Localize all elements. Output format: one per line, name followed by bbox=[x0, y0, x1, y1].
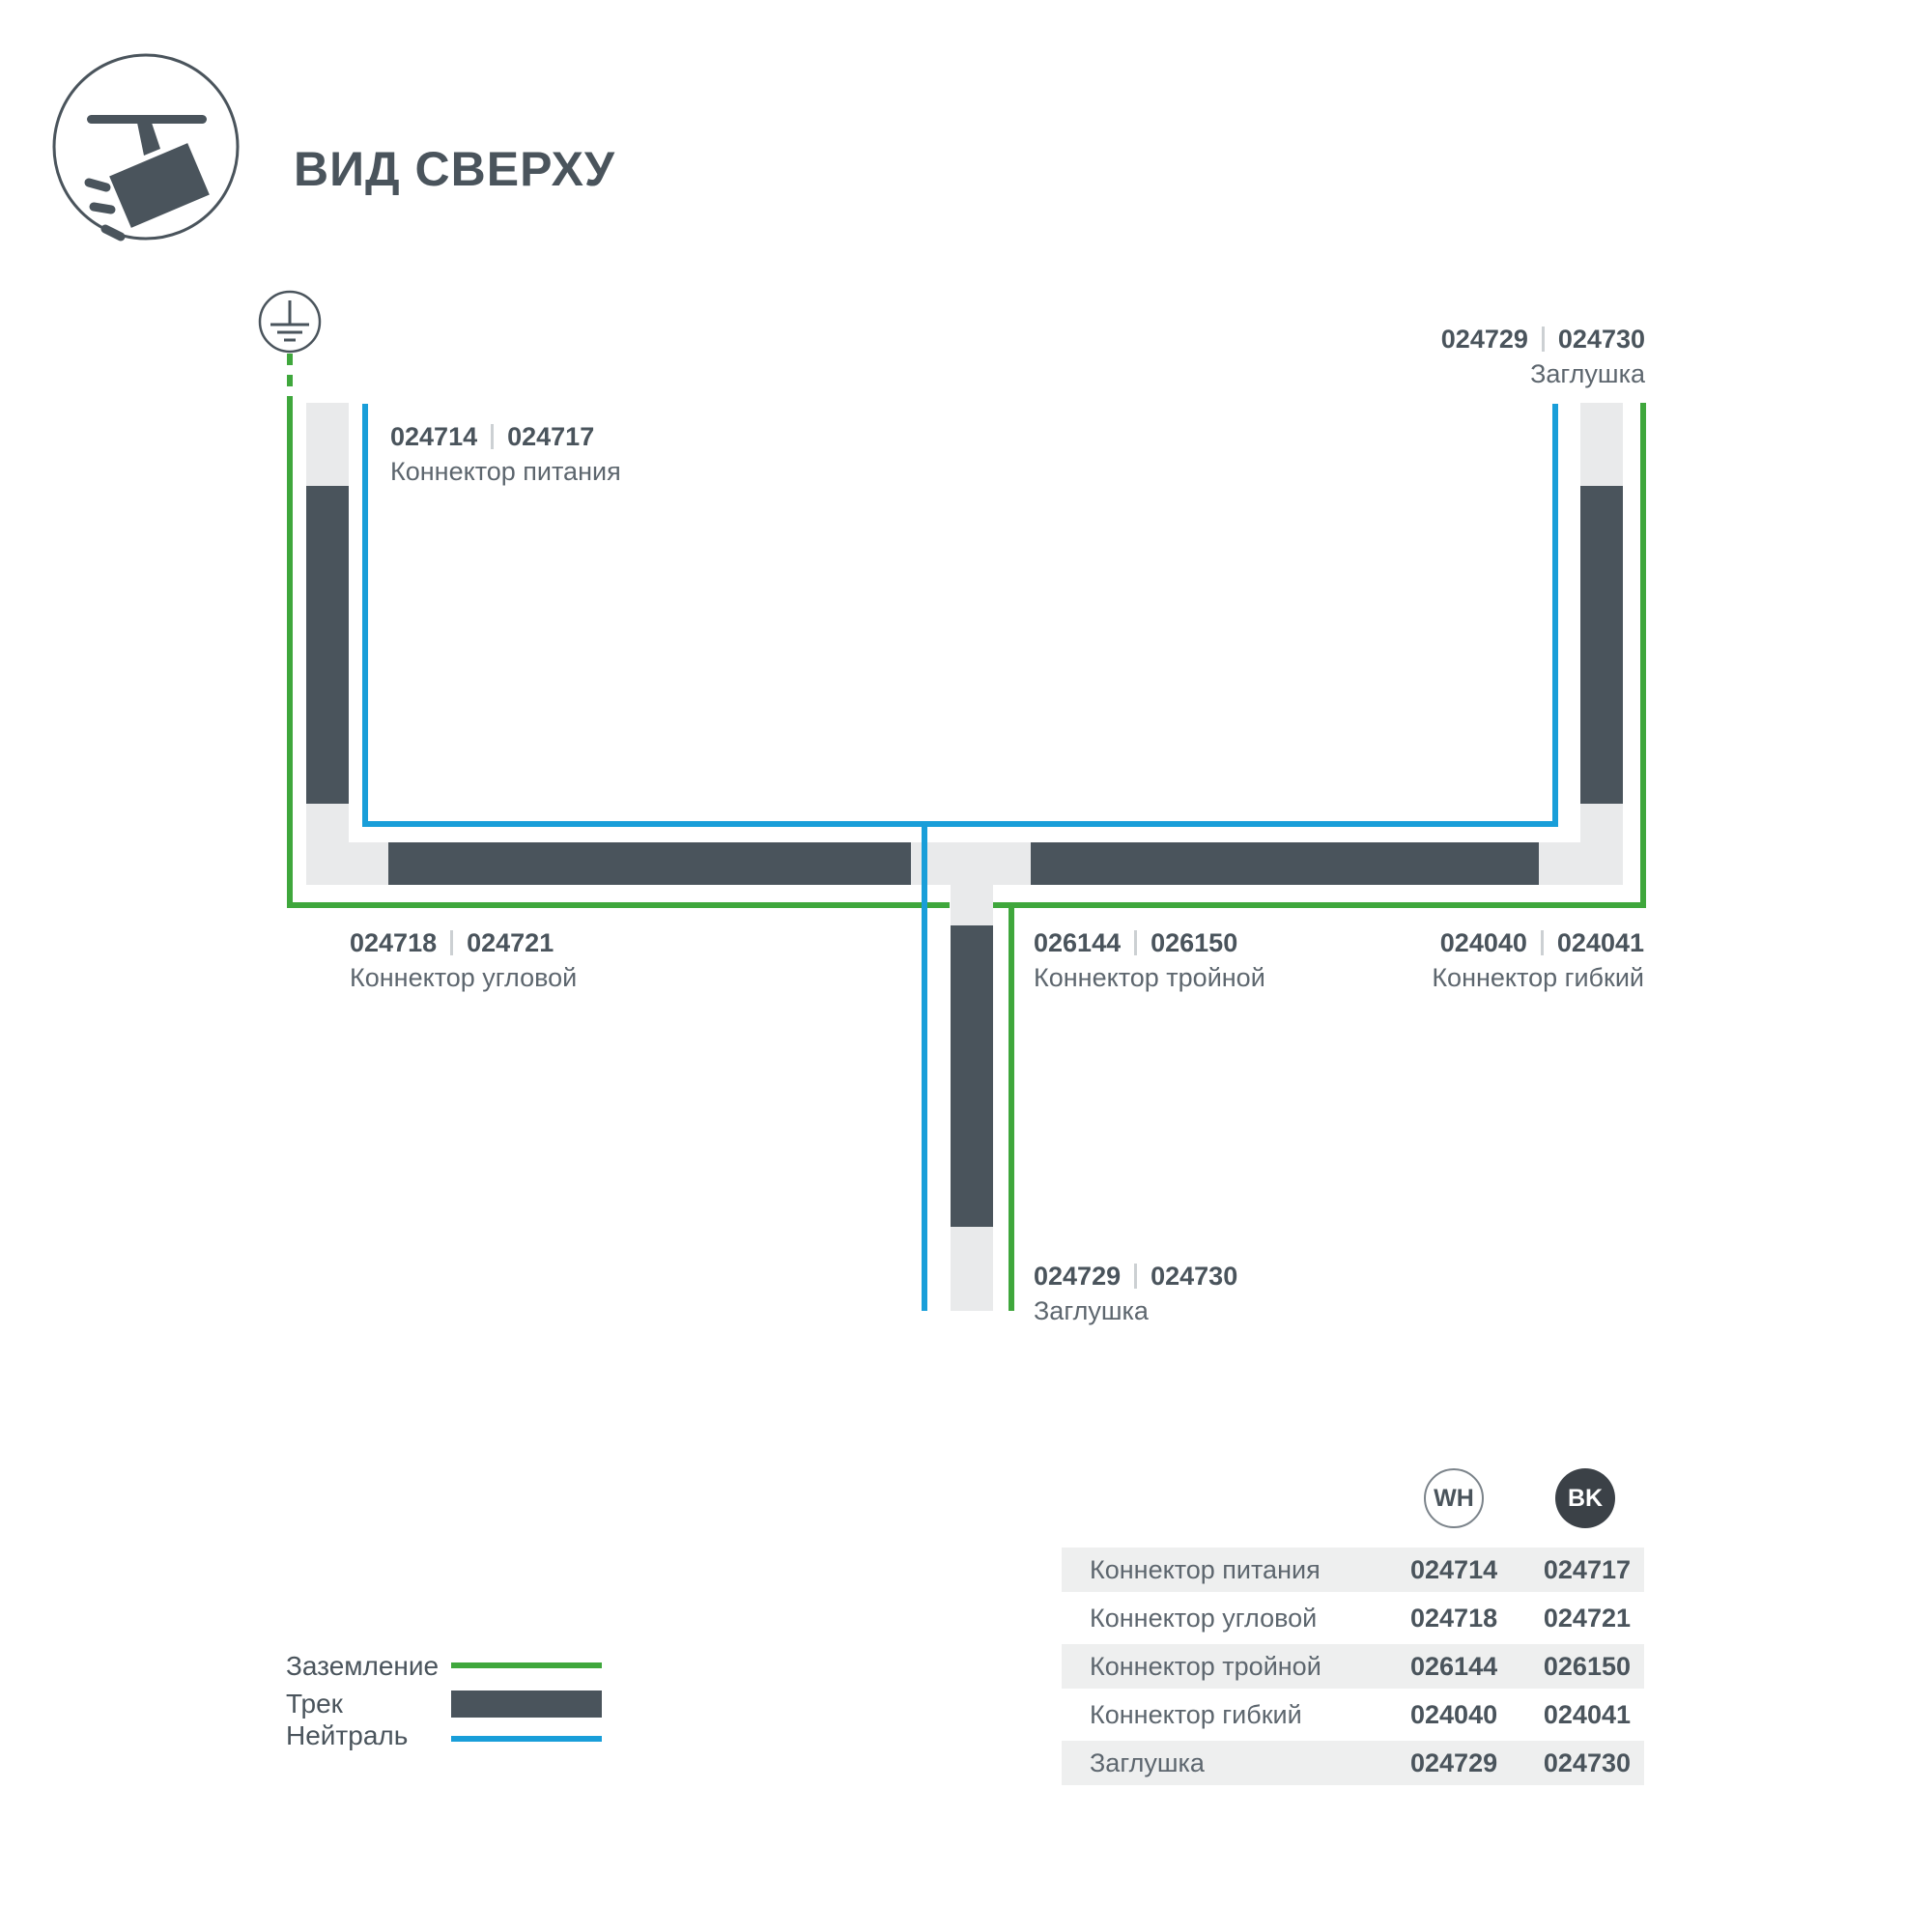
legend-swatch-track-bar bbox=[451, 1690, 602, 1718]
label-endcap-top-name: Заглушка bbox=[1530, 359, 1645, 388]
separator bbox=[491, 424, 494, 449]
neutral-line-left bbox=[362, 404, 368, 827]
part-number-wh: 024729 bbox=[1441, 325, 1528, 354]
label-endcap-top: 024729 024730 Заглушка bbox=[1441, 325, 1645, 388]
row-wh-number: 024714 bbox=[1410, 1555, 1497, 1585]
label-endcap-bottom-numbers: 024729 024730 bbox=[1034, 1262, 1237, 1291]
label-corner-connector: 024718 024721 Коннектор угловой bbox=[350, 928, 577, 992]
part-number-bk: 024730 bbox=[1558, 325, 1645, 354]
separator bbox=[1134, 930, 1137, 955]
track-segment-branch bbox=[951, 925, 993, 1227]
row-wh-number: 024729 bbox=[1410, 1748, 1497, 1778]
label-triple-name: Коннектор тройной bbox=[1034, 963, 1265, 992]
legend-label-ground: Заземление bbox=[286, 1652, 439, 1681]
color-badge-black: BK bbox=[1555, 1468, 1615, 1528]
label-endcap-bottom-name: Заглушка bbox=[1034, 1296, 1237, 1325]
part-number-bk: 024730 bbox=[1151, 1262, 1237, 1291]
part-number-wh: 024714 bbox=[390, 422, 477, 451]
separator bbox=[1541, 930, 1544, 955]
track-segment-right bbox=[1580, 486, 1623, 804]
ground-line-branch bbox=[1009, 902, 1014, 1311]
earth-ground-icon bbox=[257, 289, 323, 355]
legend-label-track: Трек bbox=[286, 1690, 343, 1719]
row-name: Коннектор тройной bbox=[1090, 1652, 1410, 1682]
part-number-wh: 024718 bbox=[350, 928, 437, 957]
row-name: Заглушка bbox=[1090, 1748, 1410, 1778]
color-badge-white: WH bbox=[1424, 1468, 1484, 1528]
label-corner-name: Коннектор угловой bbox=[350, 963, 577, 992]
label-power-connector: 024714 024717 Коннектор питания bbox=[390, 422, 621, 486]
ground-line-dashed bbox=[287, 354, 293, 404]
ground-line-right bbox=[1640, 403, 1646, 908]
table-row: Заглушка 024729 024730 bbox=[1062, 1741, 1644, 1785]
row-bk-number: 024721 bbox=[1497, 1604, 1631, 1634]
ground-line-bottom-right bbox=[993, 902, 1646, 908]
ground-line-left bbox=[287, 404, 293, 908]
label-flexible-name: Коннектор гибкий bbox=[1432, 963, 1644, 992]
label-flexible-connector: 024040 024041 Коннектор гибкий bbox=[1432, 928, 1644, 992]
row-name: Коннектор угловой bbox=[1090, 1604, 1410, 1634]
part-number-bk: 024041 bbox=[1557, 928, 1644, 957]
parts-table: Коннектор питания 024714 024717 Коннекто… bbox=[1062, 1548, 1644, 1789]
separator bbox=[1134, 1264, 1137, 1289]
legend-swatch-neutral-line bbox=[451, 1736, 602, 1742]
row-name: Коннектор питания bbox=[1090, 1555, 1410, 1585]
separator bbox=[1542, 327, 1545, 352]
table-row: Коннектор тройной 026144 026150 bbox=[1062, 1644, 1644, 1689]
label-flexible-numbers: 024040 024041 bbox=[1440, 928, 1644, 957]
row-wh-number: 024718 bbox=[1410, 1604, 1497, 1634]
label-power-numbers: 024714 024717 bbox=[390, 422, 621, 451]
row-bk-number: 026150 bbox=[1497, 1652, 1631, 1682]
part-number-bk: 024721 bbox=[467, 928, 554, 957]
track-segment-left bbox=[306, 486, 349, 804]
label-power-name: Коннектор питания bbox=[390, 457, 621, 486]
row-bk-number: 024730 bbox=[1497, 1748, 1631, 1778]
track-light-icon bbox=[50, 51, 241, 242]
row-bk-number: 024041 bbox=[1497, 1700, 1631, 1730]
row-wh-number: 026144 bbox=[1410, 1652, 1497, 1682]
table-row: Коннектор угловой 024718 024721 bbox=[1062, 1596, 1644, 1640]
label-triple-numbers: 026144 026150 bbox=[1034, 928, 1265, 957]
label-corner-numbers: 024718 024721 bbox=[350, 928, 577, 957]
neutral-line-right bbox=[1552, 404, 1558, 827]
part-number-wh: 026144 bbox=[1034, 928, 1121, 957]
neutral-line-branch bbox=[922, 824, 927, 1311]
row-name: Коннектор гибкий bbox=[1090, 1700, 1410, 1730]
part-number-bk: 026150 bbox=[1151, 928, 1237, 957]
label-endcap-bottom: 024729 024730 Заглушка bbox=[1034, 1262, 1237, 1325]
separator bbox=[450, 930, 453, 955]
ground-line-bottom-left bbox=[287, 902, 950, 908]
table-row: Коннектор питания 024714 024717 bbox=[1062, 1548, 1644, 1592]
legend-swatch-ground-line bbox=[451, 1662, 602, 1668]
track-segment-horizontal-2 bbox=[1031, 842, 1539, 885]
neutral-line-horizontal bbox=[362, 821, 1558, 827]
page-title: ВИД СВЕРХУ bbox=[294, 145, 615, 193]
part-number-wh: 024040 bbox=[1440, 928, 1527, 957]
part-number-wh: 024729 bbox=[1034, 1262, 1121, 1291]
row-wh-number: 024040 bbox=[1410, 1700, 1497, 1730]
part-number-bk: 024717 bbox=[507, 422, 594, 451]
row-bk-number: 024717 bbox=[1497, 1555, 1631, 1585]
track-segment-horizontal-1 bbox=[388, 842, 911, 885]
label-triple-connector: 026144 026150 Коннектор тройной bbox=[1034, 928, 1265, 992]
table-row: Коннектор гибкий 024040 024041 bbox=[1062, 1692, 1644, 1737]
label-endcap-top-numbers: 024729 024730 bbox=[1441, 325, 1645, 354]
page: ВИД СВЕРХУ 024714 024717 Коннектор bbox=[0, 0, 1932, 1932]
legend-label-neutral: Нейтраль bbox=[286, 1721, 408, 1750]
